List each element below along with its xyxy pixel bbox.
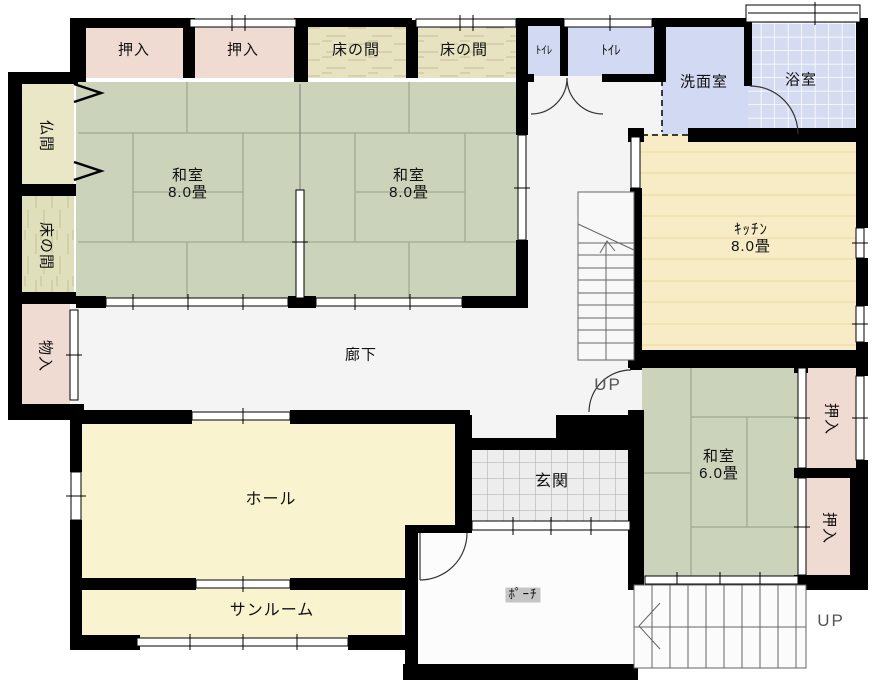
staircase-bottom [634, 585, 806, 668]
label-butsuma: 仏間 [37, 120, 54, 152]
label-kitchen: ｷｯﾁﾝ 8.0畳 [731, 221, 771, 256]
label-washitsu-3: 和室 6.0畳 [699, 448, 739, 483]
label-corridor: 廊下 [345, 346, 377, 363]
floor-plan: 押入 押入 床の間 床の間 ﾄｲﾚ ﾄｲﾚ 洗面室 浴室 仏間 床の間 物入 和… [0, 0, 874, 689]
label-toilet-2: ﾄｲﾚ [601, 44, 621, 59]
label-up-bottom: UP [817, 611, 845, 631]
floor-fills [20, 20, 863, 668]
label-porch: ﾎﾟｰﾁ [506, 588, 541, 603]
label-oshiire-top-2: 押入 [227, 41, 259, 58]
label-tokonoma-left: 床の間 [37, 222, 54, 270]
window-kitchen-left [631, 137, 640, 188]
label-washroom: 洗面室 [680, 73, 728, 90]
label-washitsu-1: 和室 8.0畳 [168, 167, 208, 202]
window-bath [746, 2, 860, 25]
label-storage: 物入 [36, 340, 53, 372]
label-tokonoma-top-2: 床の間 [440, 41, 488, 58]
label-oshiire-right-2: 押入 [820, 512, 837, 544]
washroom-approach [640, 80, 662, 134]
label-tokonoma-top-1: 床の間 [332, 41, 380, 58]
label-hall: ホール [245, 491, 296, 509]
label-bath: 浴室 [785, 71, 817, 88]
label-up-center: UP [594, 375, 622, 395]
corridor-floor-nook [472, 412, 558, 442]
label-oshiire-top-1: 押入 [118, 41, 150, 58]
floorplan-drawing [0, 0, 874, 689]
staircase-center [578, 192, 634, 360]
label-sunroom: サンルーム [230, 602, 315, 620]
label-genkan: 玄関 [535, 473, 569, 491]
label-washitsu-2: 和室 8.0畳 [389, 167, 429, 202]
label-oshiire-right-1: 押入 [822, 403, 839, 435]
label-toilet-1: ﾄｲﾚ [536, 45, 553, 58]
